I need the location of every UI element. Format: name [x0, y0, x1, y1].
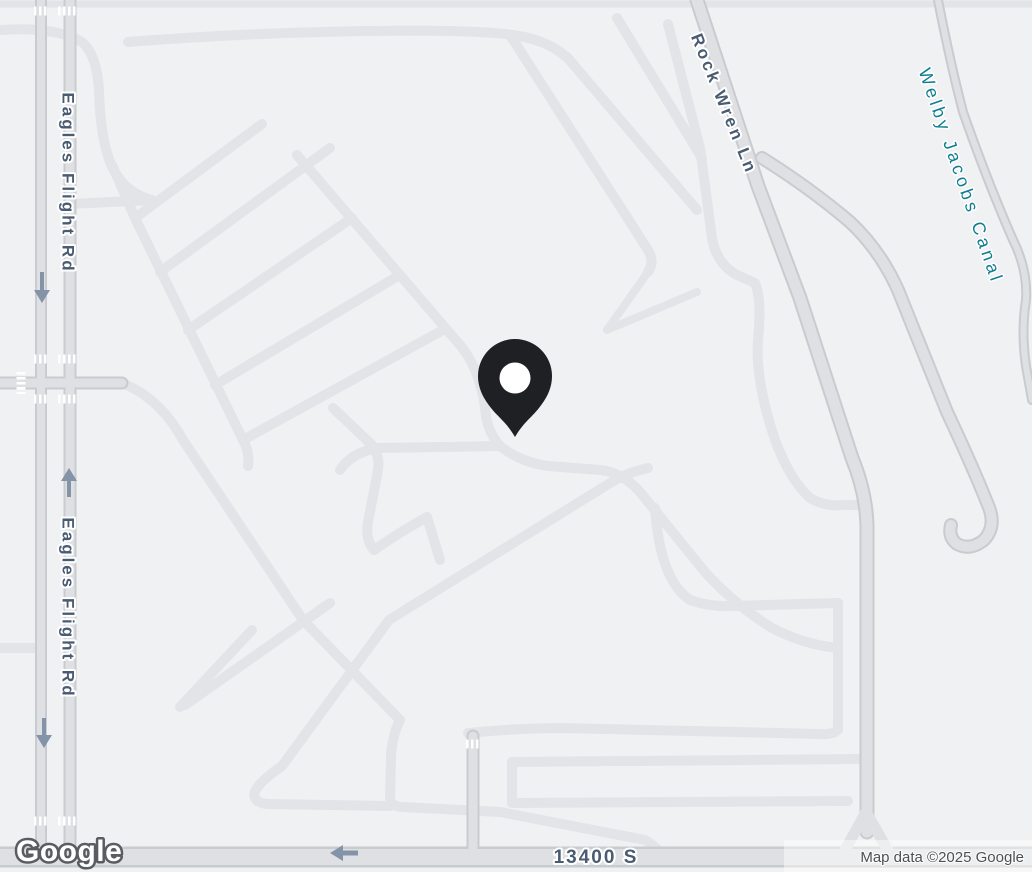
map-background — [0, 0, 1032, 872]
label-eagles-flight-rd-top: Eagles Flight Rd — [59, 92, 78, 273]
road-block-horizontal-1 — [468, 728, 838, 734]
label-eagles-flight-rd-bottom: Eagles Flight Rd — [59, 517, 78, 698]
road-stub — [70, 200, 152, 204]
label-13400-s: 13400 S — [554, 847, 639, 868]
location-pin-dot — [500, 363, 531, 394]
map-canvas[interactable]: Eagles Flight Rd Eagles Flight Rd Rock W… — [0, 0, 1032, 872]
road-block-horizontal-2 — [512, 759, 860, 762]
google-logo[interactable]: Google — [16, 835, 122, 868]
road-block-horizontal-3 — [512, 801, 848, 803]
map-viewport[interactable]: Eagles Flight Rd Eagles Flight Rd Rock W… — [0, 0, 1032, 872]
map-attribution: Map data ©2025 Google — [860, 849, 1024, 866]
